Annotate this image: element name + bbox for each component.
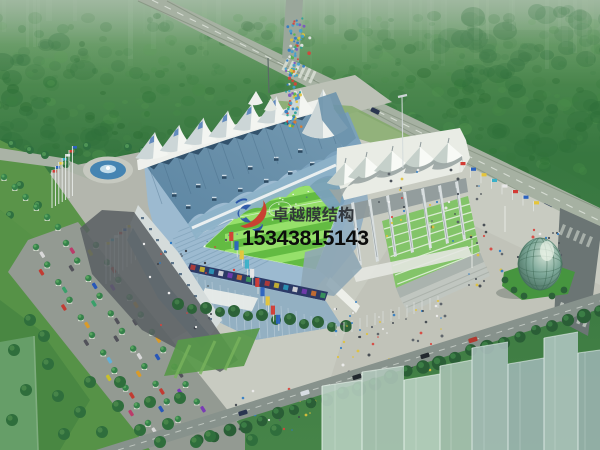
svg-text:15343815143: 15343815143 (242, 226, 369, 250)
